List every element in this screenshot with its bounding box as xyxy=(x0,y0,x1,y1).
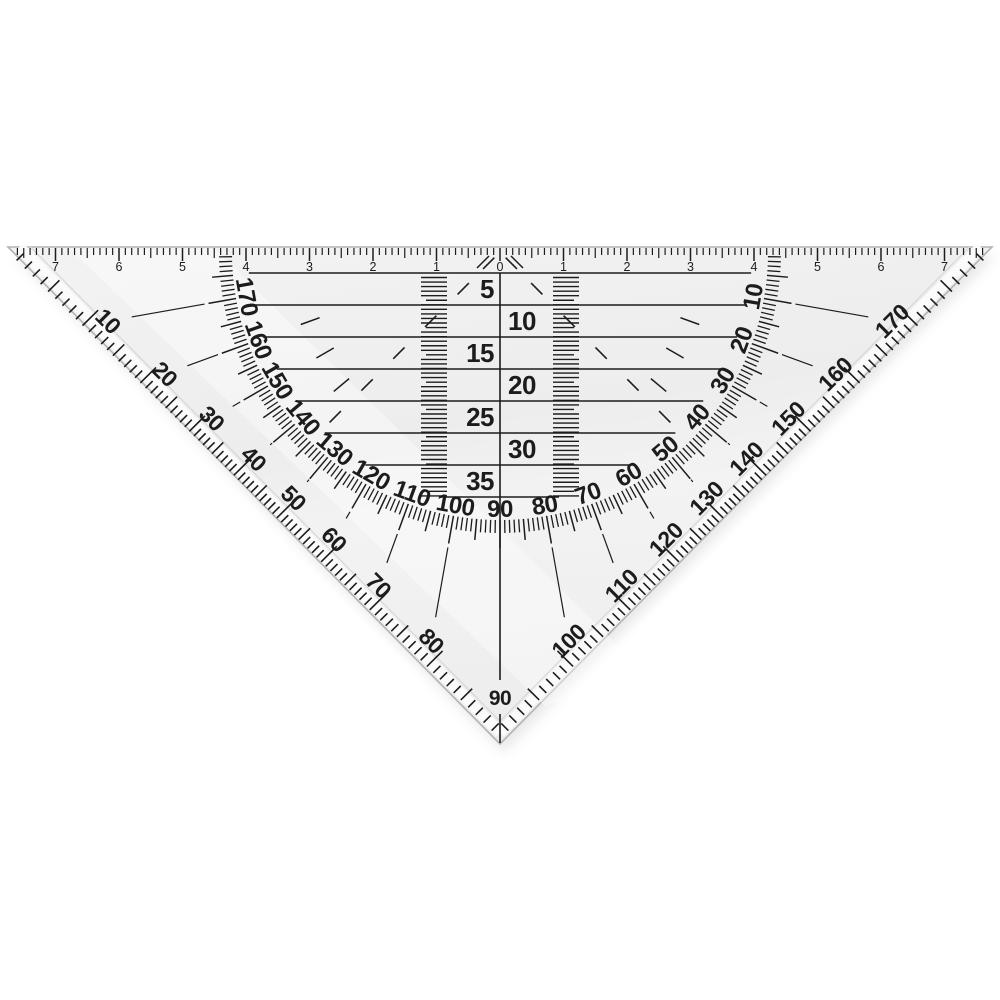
ruler-cm-label: 7 xyxy=(52,260,59,274)
apex-degree-label: 90 xyxy=(489,687,511,710)
mm-scale-label: 10 xyxy=(508,306,536,336)
ruler-cm-label: 4 xyxy=(243,260,250,274)
inner-degree-label: 80 xyxy=(530,490,560,521)
ruler-cm-label: 2 xyxy=(624,260,631,274)
ruler-cm-label: 3 xyxy=(687,260,694,274)
mm-scale-label: 20 xyxy=(508,370,536,400)
ruler-cm-label: 3 xyxy=(306,260,313,274)
ruler-cm-label: 7 xyxy=(941,260,948,274)
mm-scale-label: 15 xyxy=(466,338,494,368)
ruler-cm-label: 1 xyxy=(433,260,440,274)
mm-scale-label: 25 xyxy=(466,402,494,432)
set-square-photo: 0112233445566775101520253035102030405060… xyxy=(0,0,1000,1000)
ruler-cm-label: 5 xyxy=(814,260,821,274)
ruler-cm-label: 5 xyxy=(179,260,186,274)
inner-degree-label: 10 xyxy=(738,282,769,312)
ruler-zero-label: 0 xyxy=(497,260,504,274)
ruler-cm-label: 2 xyxy=(370,260,377,274)
ruler-cm-label: 6 xyxy=(878,260,885,274)
ruler-cm-label: 1 xyxy=(560,260,567,274)
mm-scale-label: 5 xyxy=(480,274,494,304)
ruler-cm-label: 6 xyxy=(116,260,123,274)
mm-scale-label: 30 xyxy=(508,434,536,464)
inner-degree-label: 90 xyxy=(487,496,513,523)
ruler-cm-label: 4 xyxy=(751,260,758,274)
mm-scale-label: 35 xyxy=(466,466,494,496)
set-square-svg: 0112233445566775101520253035102030405060… xyxy=(0,0,1000,1000)
